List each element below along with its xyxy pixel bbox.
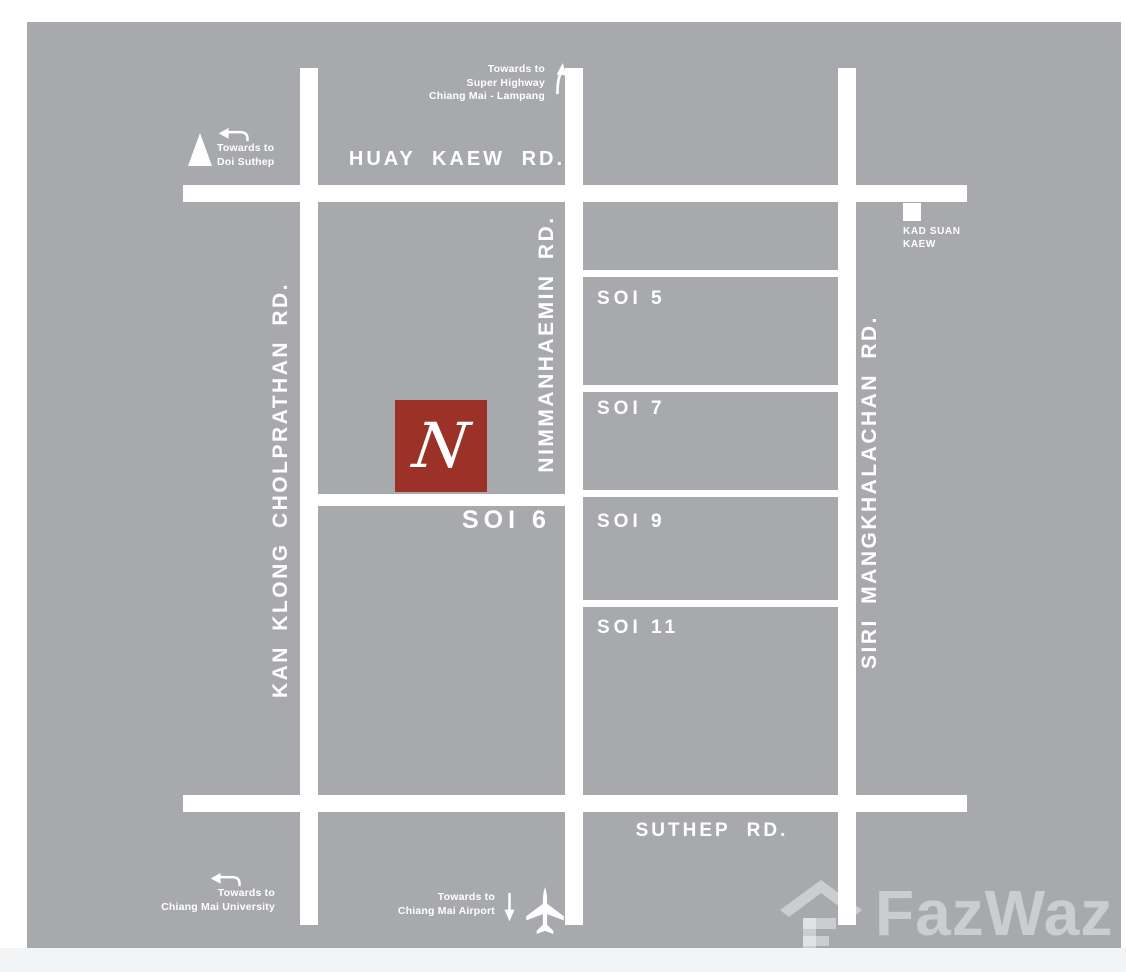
map-page: HUAY KAEW RD. SUTHEP RD. NIMMANHAEMIN RD… [0, 0, 1126, 972]
location-map: HUAY KAEW RD. SUTHEP RD. NIMMANHAEMIN RD… [27, 22, 1121, 948]
down-arrow-icon [502, 893, 517, 923]
soi-6-label: SOI 6 [462, 506, 551, 535]
road-suthep [183, 795, 967, 812]
mountain-icon [188, 133, 212, 169]
direction-super-highway: Towards to Super Highway Chiang Mai - La… [385, 63, 569, 104]
road-huay-kaew [183, 185, 967, 202]
property-marker-letter: N [410, 415, 473, 477]
huay-kaew-road-label: HUAY KAEW RD. [327, 148, 587, 171]
kad-suan-kaew-line2: KAEW [903, 239, 961, 252]
soi-9-label: SOI 9 [597, 511, 666, 533]
super-highway-line1: Towards to [385, 63, 545, 77]
kad-suan-kaew-label: KAD SUAN KAEW [903, 226, 961, 251]
road-soi-11 [583, 600, 838, 607]
soi-7-label: SOI 7 [597, 398, 666, 420]
kan-klong-cholprathan-road-label: KAN KLONG CHOLPRATHAN RD. [269, 282, 293, 698]
direction-airport: Towards to Chiang Mai Airport [357, 891, 566, 935]
university-line1: Towards to [153, 887, 275, 901]
university-line2: Chiang Mai University [153, 901, 275, 915]
airport-line1: Towards to [357, 891, 495, 905]
direction-university: Towards to Chiang Mai University [153, 873, 275, 914]
turn-left-arrow-icon [153, 873, 275, 887]
siri-mangkhalachan-road-label: SIRI MANGKHALACHAN RD. [858, 315, 882, 669]
suthep-road-label: SUTHEP RD. [627, 820, 797, 842]
super-highway-line3: Chiang Mai - Lampang [385, 90, 545, 104]
road-soi-5 [583, 270, 838, 277]
footer-strip [0, 948, 1126, 972]
road-soi-9 [583, 490, 838, 497]
airplane-icon [524, 885, 566, 935]
road-soi-6 [318, 494, 565, 506]
up-arrow-icon [553, 63, 569, 95]
doi-suthep-line1: Towards to [217, 142, 274, 156]
turn-left-arrow-icon [217, 128, 274, 142]
soi-11-label: SOI 11 [597, 617, 679, 639]
doi-suthep-line2: Doi Suthep [217, 156, 274, 170]
property-marker: N [395, 400, 487, 492]
watermark-text: FazWaz [875, 876, 1113, 948]
nimmanhaemin-road-label: NIMMANHAEMIN RD. [535, 215, 559, 472]
kad-suan-kaew-marker [903, 203, 921, 221]
watermark: FazWaz [775, 876, 1113, 948]
soi-5-label: SOI 5 [597, 288, 666, 310]
kad-suan-kaew-line1: KAD SUAN [903, 226, 961, 239]
super-highway-line2: Super Highway [385, 77, 545, 91]
watermark-house-icon [775, 876, 867, 948]
road-soi-7 [583, 385, 838, 392]
airport-line2: Chiang Mai Airport [357, 905, 495, 919]
direction-doi-suthep: Towards to Doi Suthep [188, 128, 274, 169]
